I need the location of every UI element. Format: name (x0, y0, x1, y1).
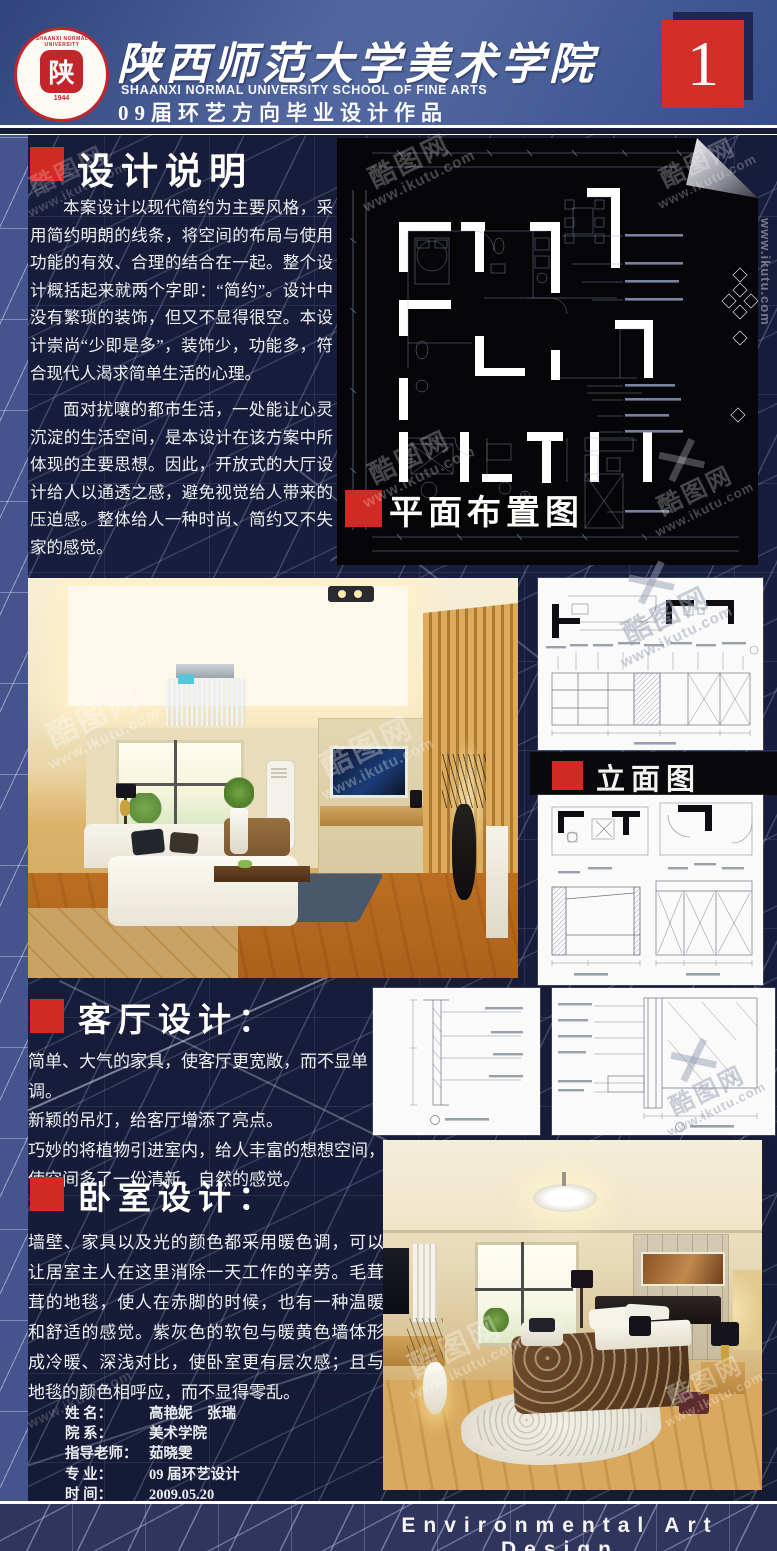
credit-label: 院 系： (65, 1424, 149, 1444)
sofa-cushion (169, 832, 199, 854)
speaker (410, 790, 422, 808)
living-room-line: 巧妙的将植物引进室内，给人丰富的想想空间， (28, 1136, 388, 1166)
poster-root: SHAANXI NORMAL UNIVERSITY 陕 1944 陕西师范大学美… (0, 0, 777, 1551)
elevation-drawing-top (538, 578, 763, 750)
bench-cushion (529, 1318, 555, 1332)
credit-value: 09 届环艺设计 (149, 1465, 240, 1485)
lamp-stem (562, 1172, 566, 1186)
header: SHAANXI NORMAL UNIVERSITY 陕 1944 陕西师范大学美… (0, 0, 777, 125)
credit-label: 姓 名： (65, 1404, 149, 1424)
window-mullion (174, 740, 177, 836)
floor-cushion (679, 1392, 709, 1414)
elevation-bullet (552, 761, 583, 790)
bedroom-photo (383, 1140, 762, 1490)
left-bed-lamp (629, 1316, 651, 1336)
university-logo: SHAANXI NORMAL UNIVERSITY 陕 1944 (14, 27, 109, 122)
header-separator (0, 125, 777, 135)
credits-block: 姓 名：高艳妮 张瑞 院 系：美术学院 指导老师：茹晓雯 专 业：09 届环艺设… (65, 1404, 240, 1505)
nightstand-lamp-base (721, 1345, 729, 1363)
living-room-photo (28, 578, 518, 978)
tv-screen (330, 746, 408, 798)
design-notes-heading: 设计说明 (77, 141, 253, 195)
elevation-label: 立面图 (596, 756, 701, 798)
logo-seal-icon: 陕 (40, 50, 83, 93)
lamp-gold-accent (120, 800, 130, 816)
credit-value: 高艳妮 张瑞 (149, 1404, 236, 1424)
detail-panel-left (373, 988, 540, 1135)
credit-row: 专 业：09 届环艺设计 (65, 1465, 240, 1485)
floor-plan-panel: 平面布置图 (337, 138, 758, 565)
chandelier-crystals (166, 678, 246, 726)
detail-drawing-right (552, 988, 775, 1135)
nightstand (701, 1362, 745, 1394)
footer-title: Environmental Art Design (350, 1514, 770, 1551)
nightstand-lamp-shade (711, 1322, 739, 1346)
living-room-heading: 客厅设计： (78, 993, 278, 1041)
elevation-label-strip: 立面图 (530, 752, 777, 795)
chandelier-accent (178, 674, 194, 684)
living-room-line: 简单、大气的家具，使客厅更宽敞，而不显单调。 (28, 1047, 388, 1106)
floor-plan-label: 平面布置图 (389, 485, 584, 534)
design-notes-paragraph-1: 本案设计以现代简约为主要风格，采用简约明朗的线条，将空间的布局与使用功能的有效、… (30, 194, 333, 387)
logo-year: 1944 (14, 95, 109, 102)
left-accent-strip (0, 131, 28, 1502)
plant (224, 776, 254, 810)
bed-floor-lamp-pole (580, 1288, 583, 1328)
spot-bulb (354, 590, 362, 598)
credit-row: 姓 名：高艳妮 张瑞 (65, 1404, 240, 1424)
ceiling-spotlight (328, 586, 374, 602)
white-pedestal (486, 826, 508, 938)
bedroom-heading: 卧室设计： (78, 1171, 278, 1219)
page-fold-corner (686, 138, 758, 198)
ac-vent (271, 768, 287, 778)
header-subtitle: 09届环艺方向毕业设计作品 (118, 97, 448, 127)
elevation-panel-top (538, 578, 763, 750)
elevation-panel-bottom (538, 795, 763, 985)
coffee-table (214, 866, 310, 882)
plant-vase (230, 808, 248, 854)
wall-tv (383, 1248, 409, 1314)
spot-bulb (338, 590, 346, 598)
tv-cabinet (320, 806, 424, 826)
detail-panel-right (552, 988, 775, 1135)
credit-value: 美术学院 (149, 1424, 207, 1444)
living-room-line: 新颖的吊灯，给客厅增添了亮点。 (28, 1106, 388, 1136)
living-room-bullet (30, 999, 64, 1033)
bedroom-bullet (30, 1177, 64, 1211)
bed-window-mullion (475, 1288, 573, 1291)
logo-ring-text: SHAANXI NORMAL UNIVERSITY (22, 36, 102, 48)
credit-label: 指导老师： (65, 1444, 149, 1464)
detail-drawing-left (373, 988, 540, 1135)
wall-art (641, 1252, 725, 1286)
watermark: www.ikutu.com (758, 218, 772, 326)
window-plant (483, 1308, 509, 1332)
credit-value: 茹晓雯 (149, 1444, 193, 1464)
bedroom-paragraph: 墙壁、家具以及光的颜色都采用暖色调，可以让居室主人在这里消除一天工作的辛劳。毛茸… (28, 1228, 384, 1408)
tall-black-vase (452, 804, 476, 900)
vase-twigs (407, 1318, 443, 1362)
university-title-en: SHAANXI NORMAL UNIVERSITY SCHOOL OF FINE… (121, 83, 487, 97)
floor-plan-bullet (345, 490, 382, 527)
sofa-cushion-dark (131, 828, 165, 855)
ceiling-lamp (533, 1184, 597, 1212)
credit-label: 专 业： (65, 1465, 149, 1485)
white-floor-vase (423, 1362, 447, 1414)
elevation-drawing-bottom (538, 795, 763, 985)
credit-row: 指导老师：茹晓雯 (65, 1444, 240, 1464)
table-decor (238, 860, 252, 868)
page-number-badge: 1 (662, 20, 744, 108)
footer-bar: Environmental Art Design (0, 1504, 777, 1551)
radiator (413, 1244, 437, 1322)
floor-lamp-shade (116, 784, 136, 798)
credit-row: 院 系：美术学院 (65, 1424, 240, 1444)
design-notes-bullet (30, 147, 64, 181)
design-notes-paragraph-2: 面对扰嚷的都市生活，一处能让心灵沉淀的生活空间，是本设计在该方案中所体现的主要思… (30, 396, 333, 562)
vase-branches (442, 754, 486, 808)
bed-floor-lamp-shade (571, 1270, 593, 1288)
crown-molding (383, 1230, 762, 1233)
